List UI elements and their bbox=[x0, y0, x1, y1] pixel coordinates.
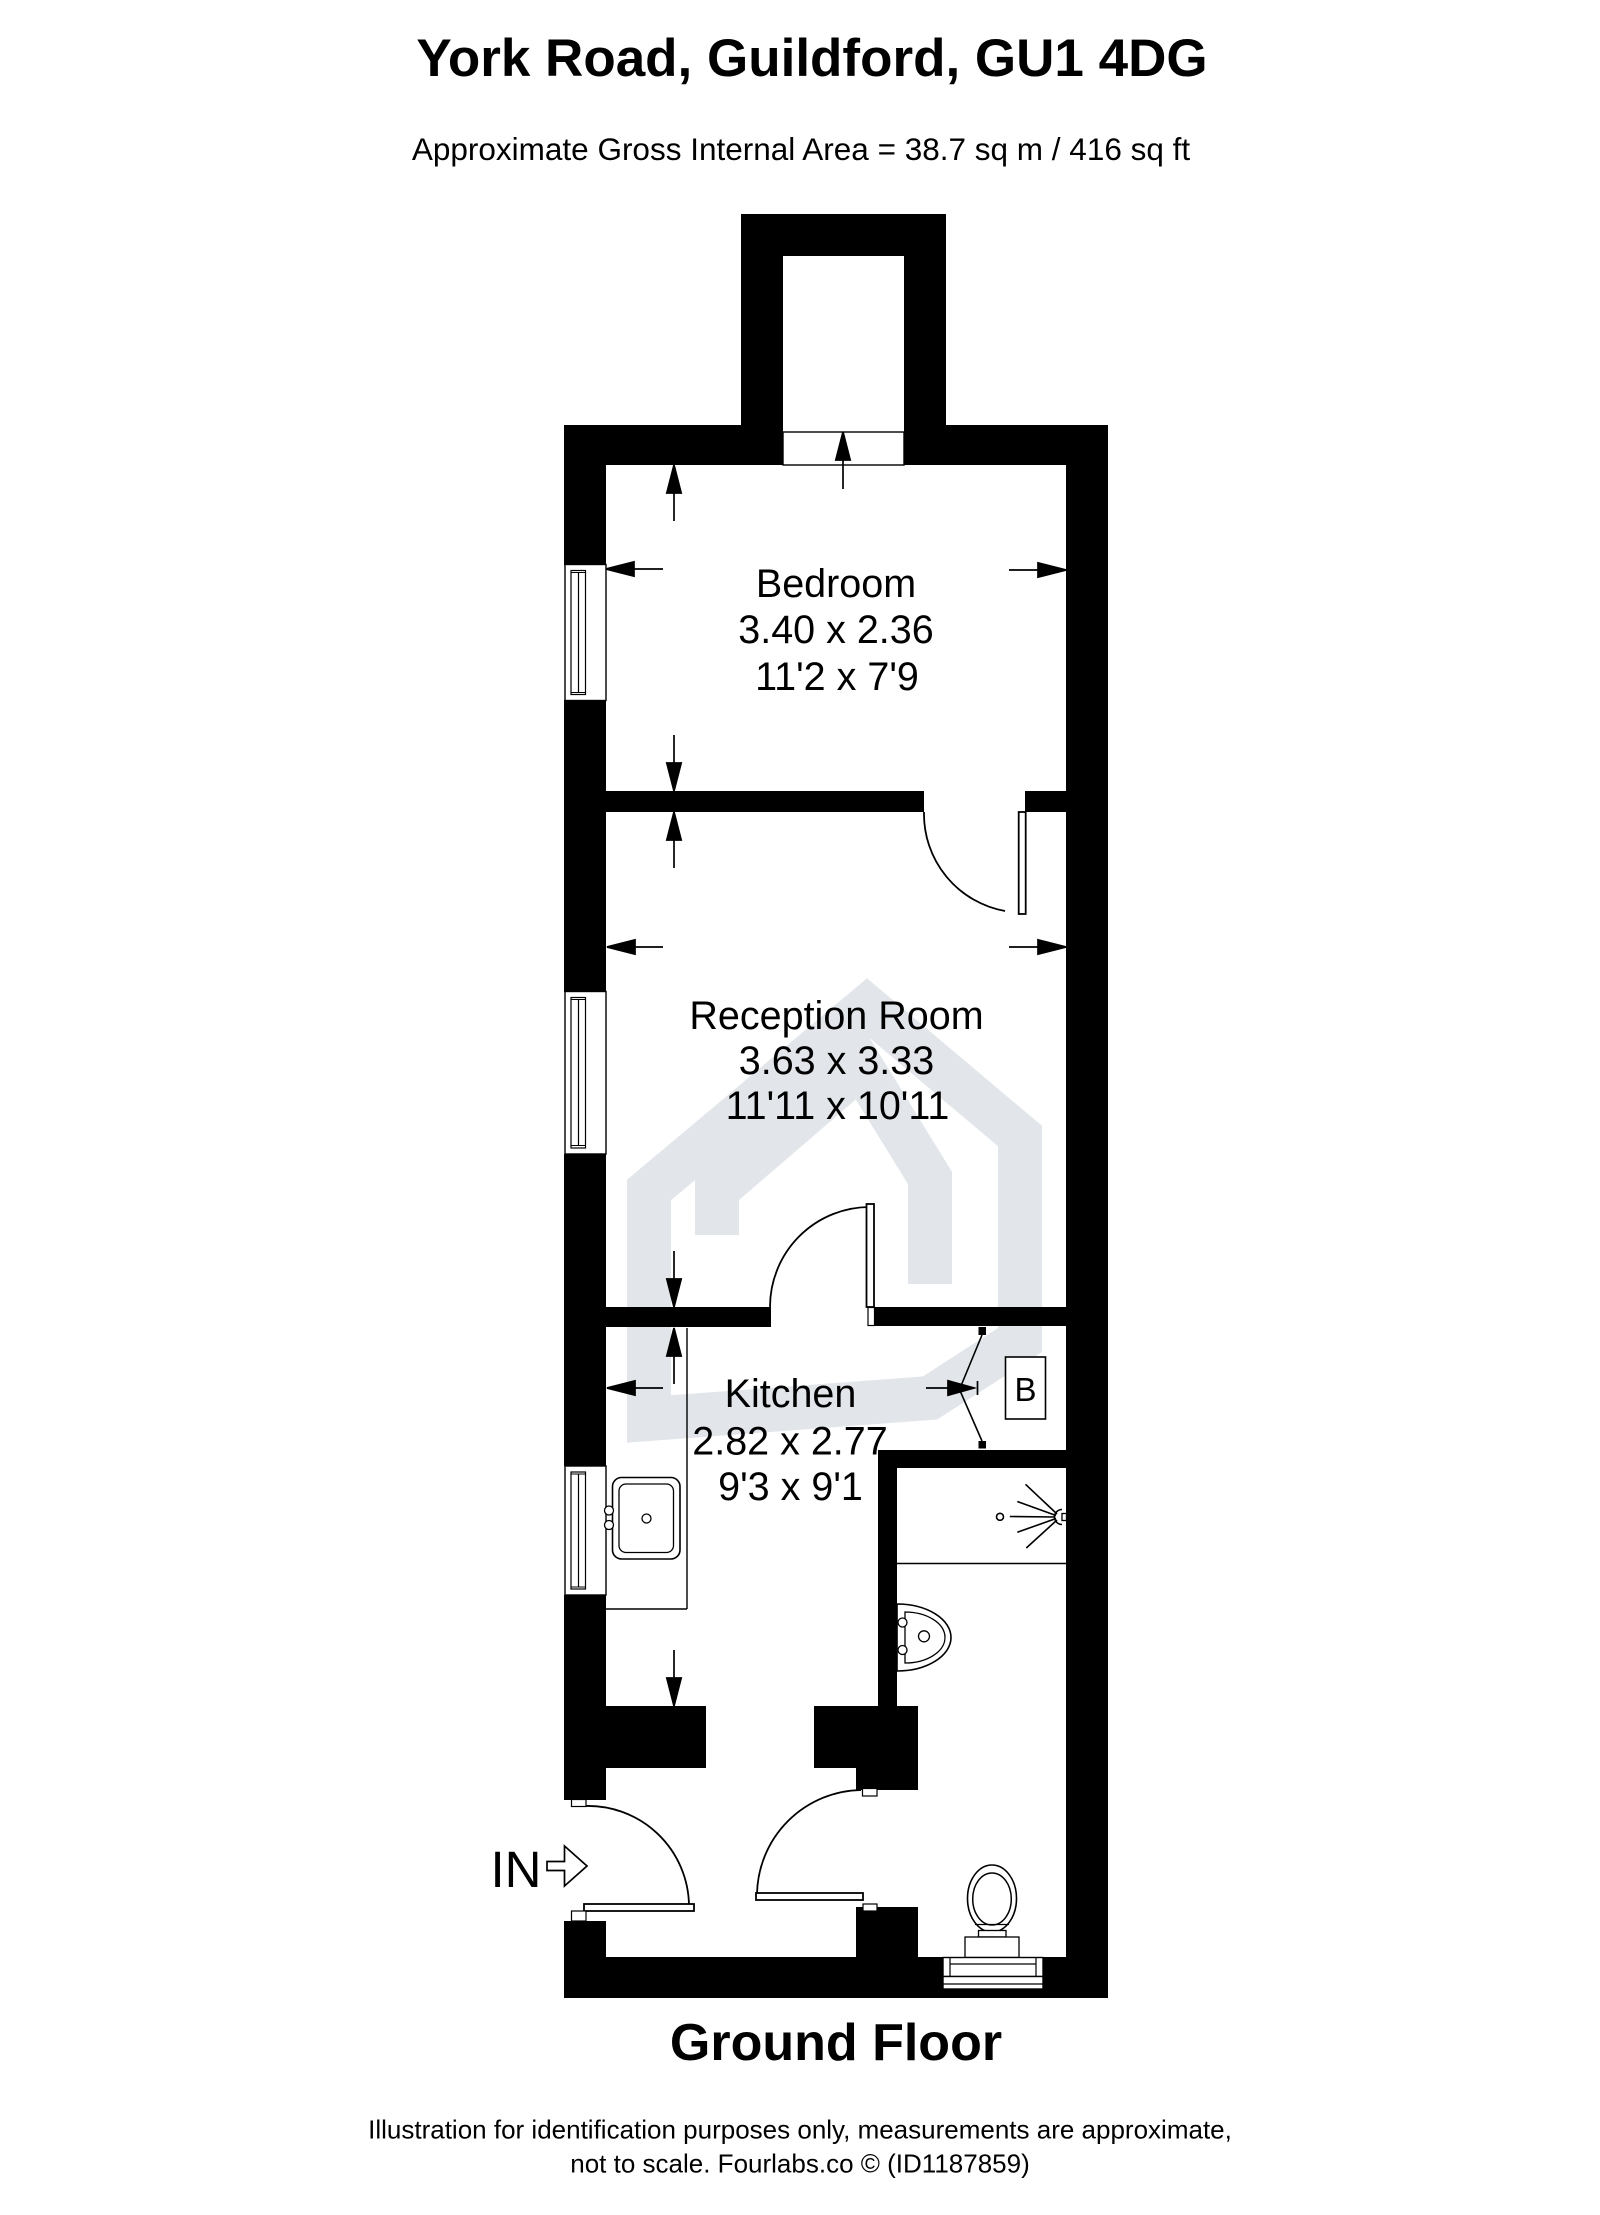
svg-text:Approximate Gross Internal Are: Approximate Gross Internal Area = 38.7 s… bbox=[412, 131, 1191, 167]
svg-text:Illustration for identificatio: Illustration for identification purposes… bbox=[368, 2115, 1232, 2145]
svg-text:11'11 x 10'11: 11'11 x 10'11 bbox=[726, 1084, 950, 1128]
svg-text:3.63 x 3.33: 3.63 x 3.33 bbox=[739, 1039, 934, 1083]
svg-text:Reception Room: Reception Room bbox=[689, 994, 983, 1038]
svg-text:IN: IN bbox=[491, 1841, 542, 1898]
svg-text:11'2 x 7'9: 11'2 x 7'9 bbox=[755, 655, 919, 699]
svg-text:Ground Floor: Ground Floor bbox=[670, 2014, 1002, 2072]
svg-text:Bedroom: Bedroom bbox=[756, 562, 916, 606]
svg-text:3.40 x 2.36: 3.40 x 2.36 bbox=[738, 608, 933, 652]
svg-text:2.82 x 2.77: 2.82 x 2.77 bbox=[692, 1420, 887, 1464]
svg-text:Kitchen: Kitchen bbox=[725, 1372, 857, 1416]
svg-text:9'3 x 9'1: 9'3 x 9'1 bbox=[718, 1465, 863, 1509]
svg-text:not to scale. Fourlabs.co © (I: not to scale. Fourlabs.co © (ID1187859) bbox=[570, 2149, 1029, 2179]
svg-text:B: B bbox=[1014, 1371, 1036, 1408]
svg-text:York Road, Guildford, GU1 4DG: York Road, Guildford, GU1 4DG bbox=[416, 29, 1207, 88]
